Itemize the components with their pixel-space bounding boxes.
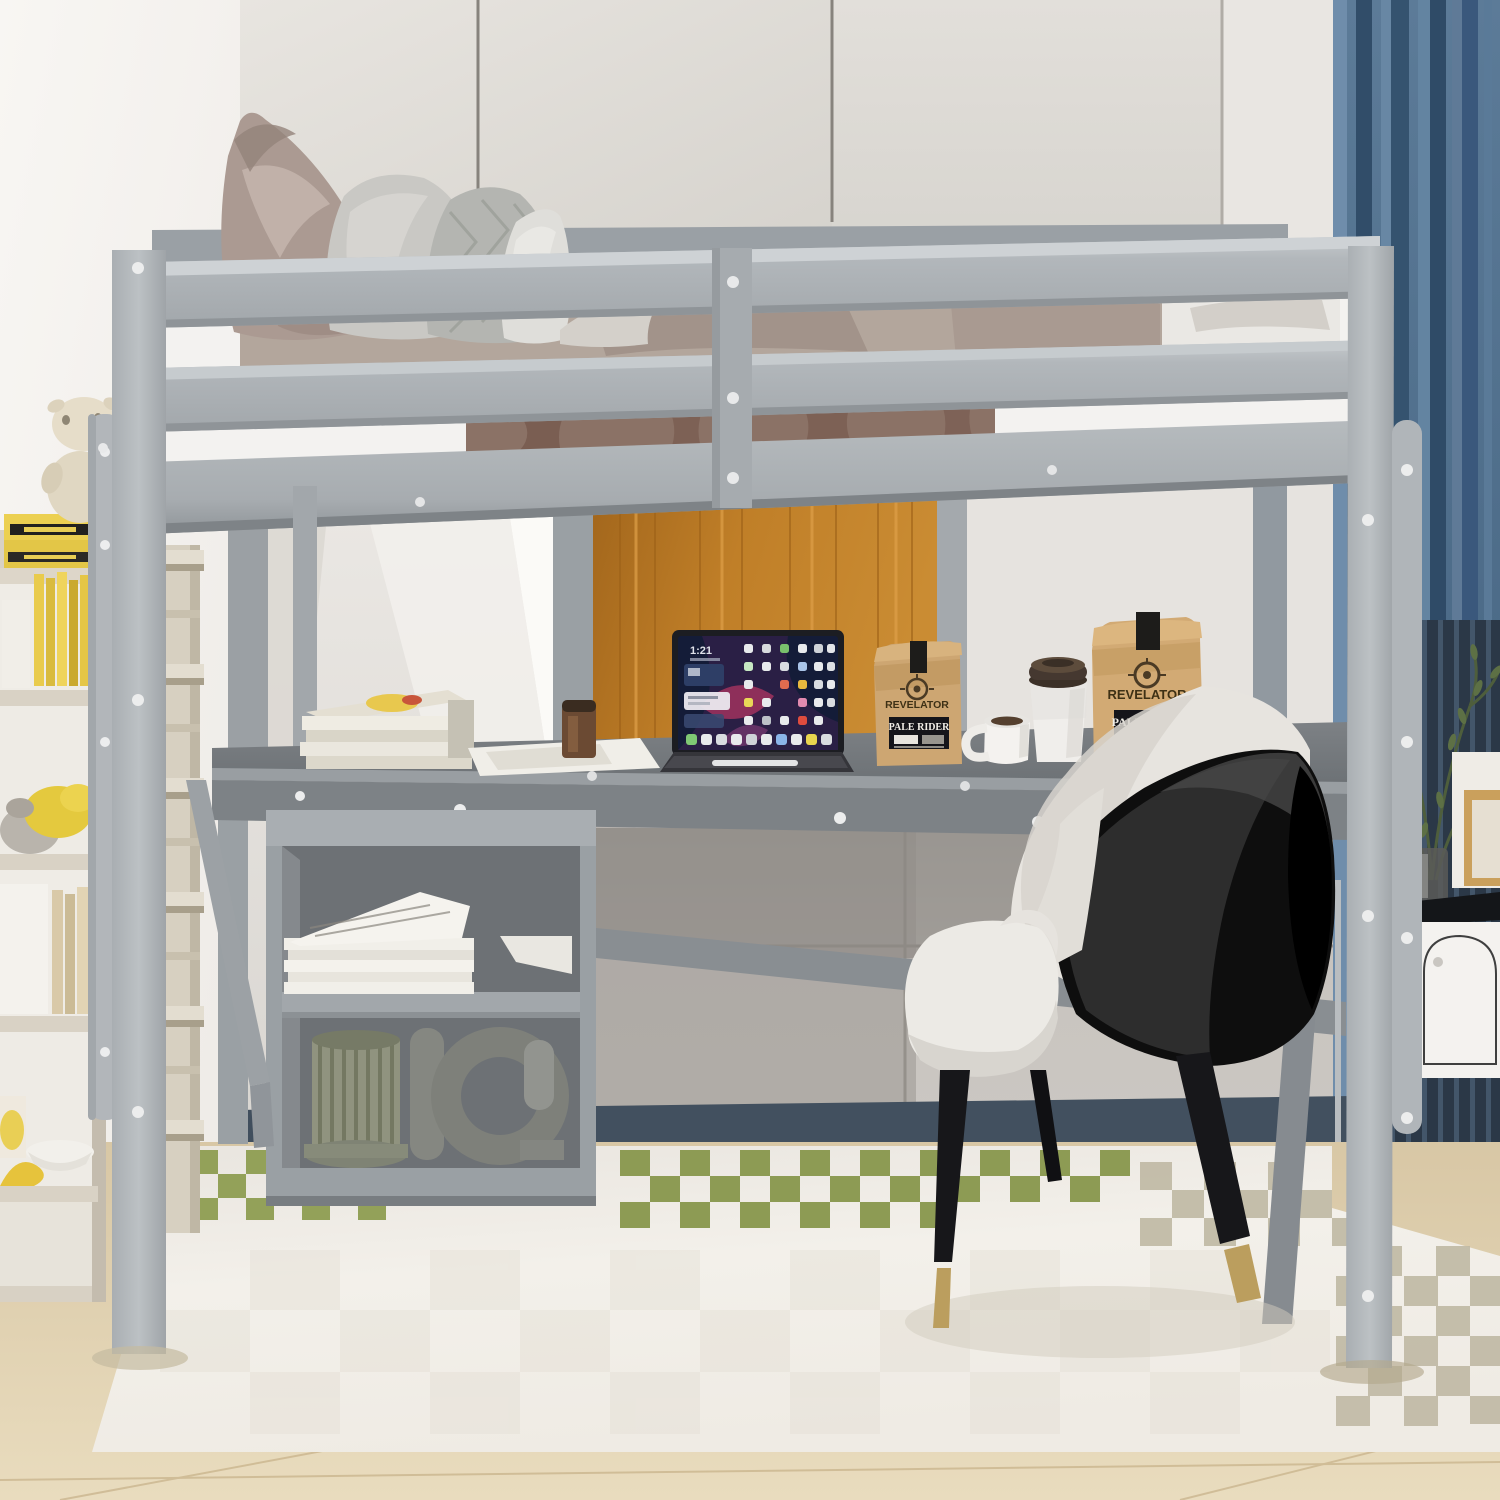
svg-text:1:21: 1:21: [690, 645, 712, 657]
svg-text:PALE RIDER: PALE RIDER: [889, 722, 950, 733]
svg-text:REVELATOR: REVELATOR: [885, 699, 949, 711]
